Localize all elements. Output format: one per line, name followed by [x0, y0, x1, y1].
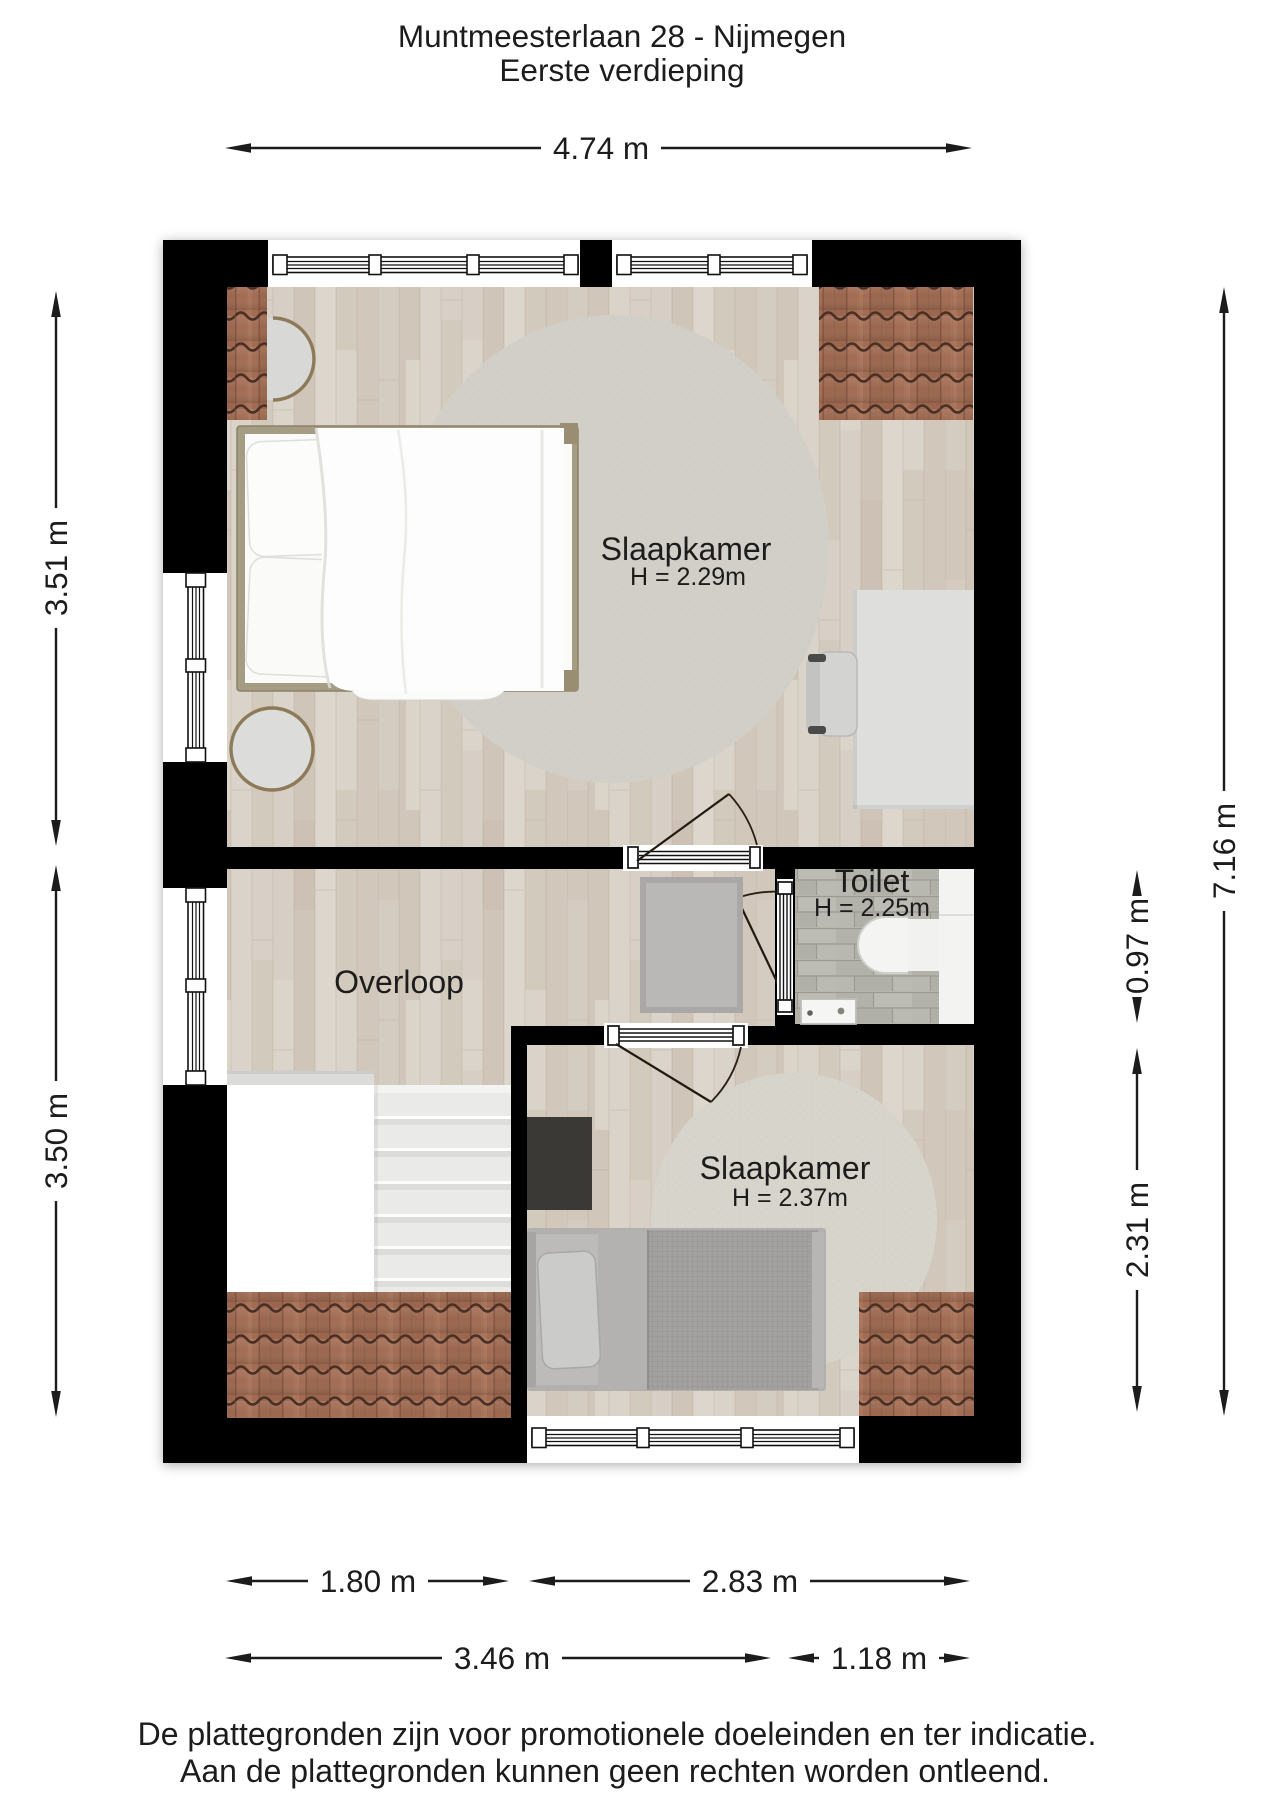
svg-text:H = 2.29m: H = 2.29m [630, 563, 746, 591]
svg-text:3.46 m: 3.46 m [454, 1640, 550, 1676]
svg-text:De plattegronden zijn voor pro: De plattegronden zijn voor promotionele … [138, 1716, 1097, 1752]
svg-text:2.31 m: 2.31 m [1119, 1182, 1155, 1278]
svg-text:Slaapkamer: Slaapkamer [700, 1150, 871, 1186]
svg-text:Eerste verdieping: Eerste verdieping [499, 52, 744, 88]
svg-text:H = 2.37m: H = 2.37m [732, 1184, 848, 1212]
svg-text:3.51 m: 3.51 m [38, 520, 74, 616]
svg-text:4.74 m: 4.74 m [553, 130, 649, 166]
svg-text:Muntmeesterlaan 28 - Nijmegen: Muntmeesterlaan 28 - Nijmegen [398, 18, 846, 54]
svg-text:1.80 m: 1.80 m [320, 1563, 416, 1599]
svg-text:Slaapkamer: Slaapkamer [601, 531, 772, 567]
svg-text:1.18 m: 1.18 m [831, 1640, 927, 1676]
svg-text:3.50 m: 3.50 m [38, 1093, 74, 1189]
svg-text:7.16 m: 7.16 m [1206, 803, 1242, 899]
svg-text:Overloop: Overloop [334, 964, 464, 1000]
svg-text:2.83 m: 2.83 m [702, 1563, 798, 1599]
svg-text:H = 2.25m: H = 2.25m [814, 894, 930, 922]
svg-text:0.97 m: 0.97 m [1119, 898, 1155, 994]
svg-text:Aan de plattegronden kunnen ge: Aan de plattegronden kunnen geen rechten… [180, 1753, 1050, 1789]
